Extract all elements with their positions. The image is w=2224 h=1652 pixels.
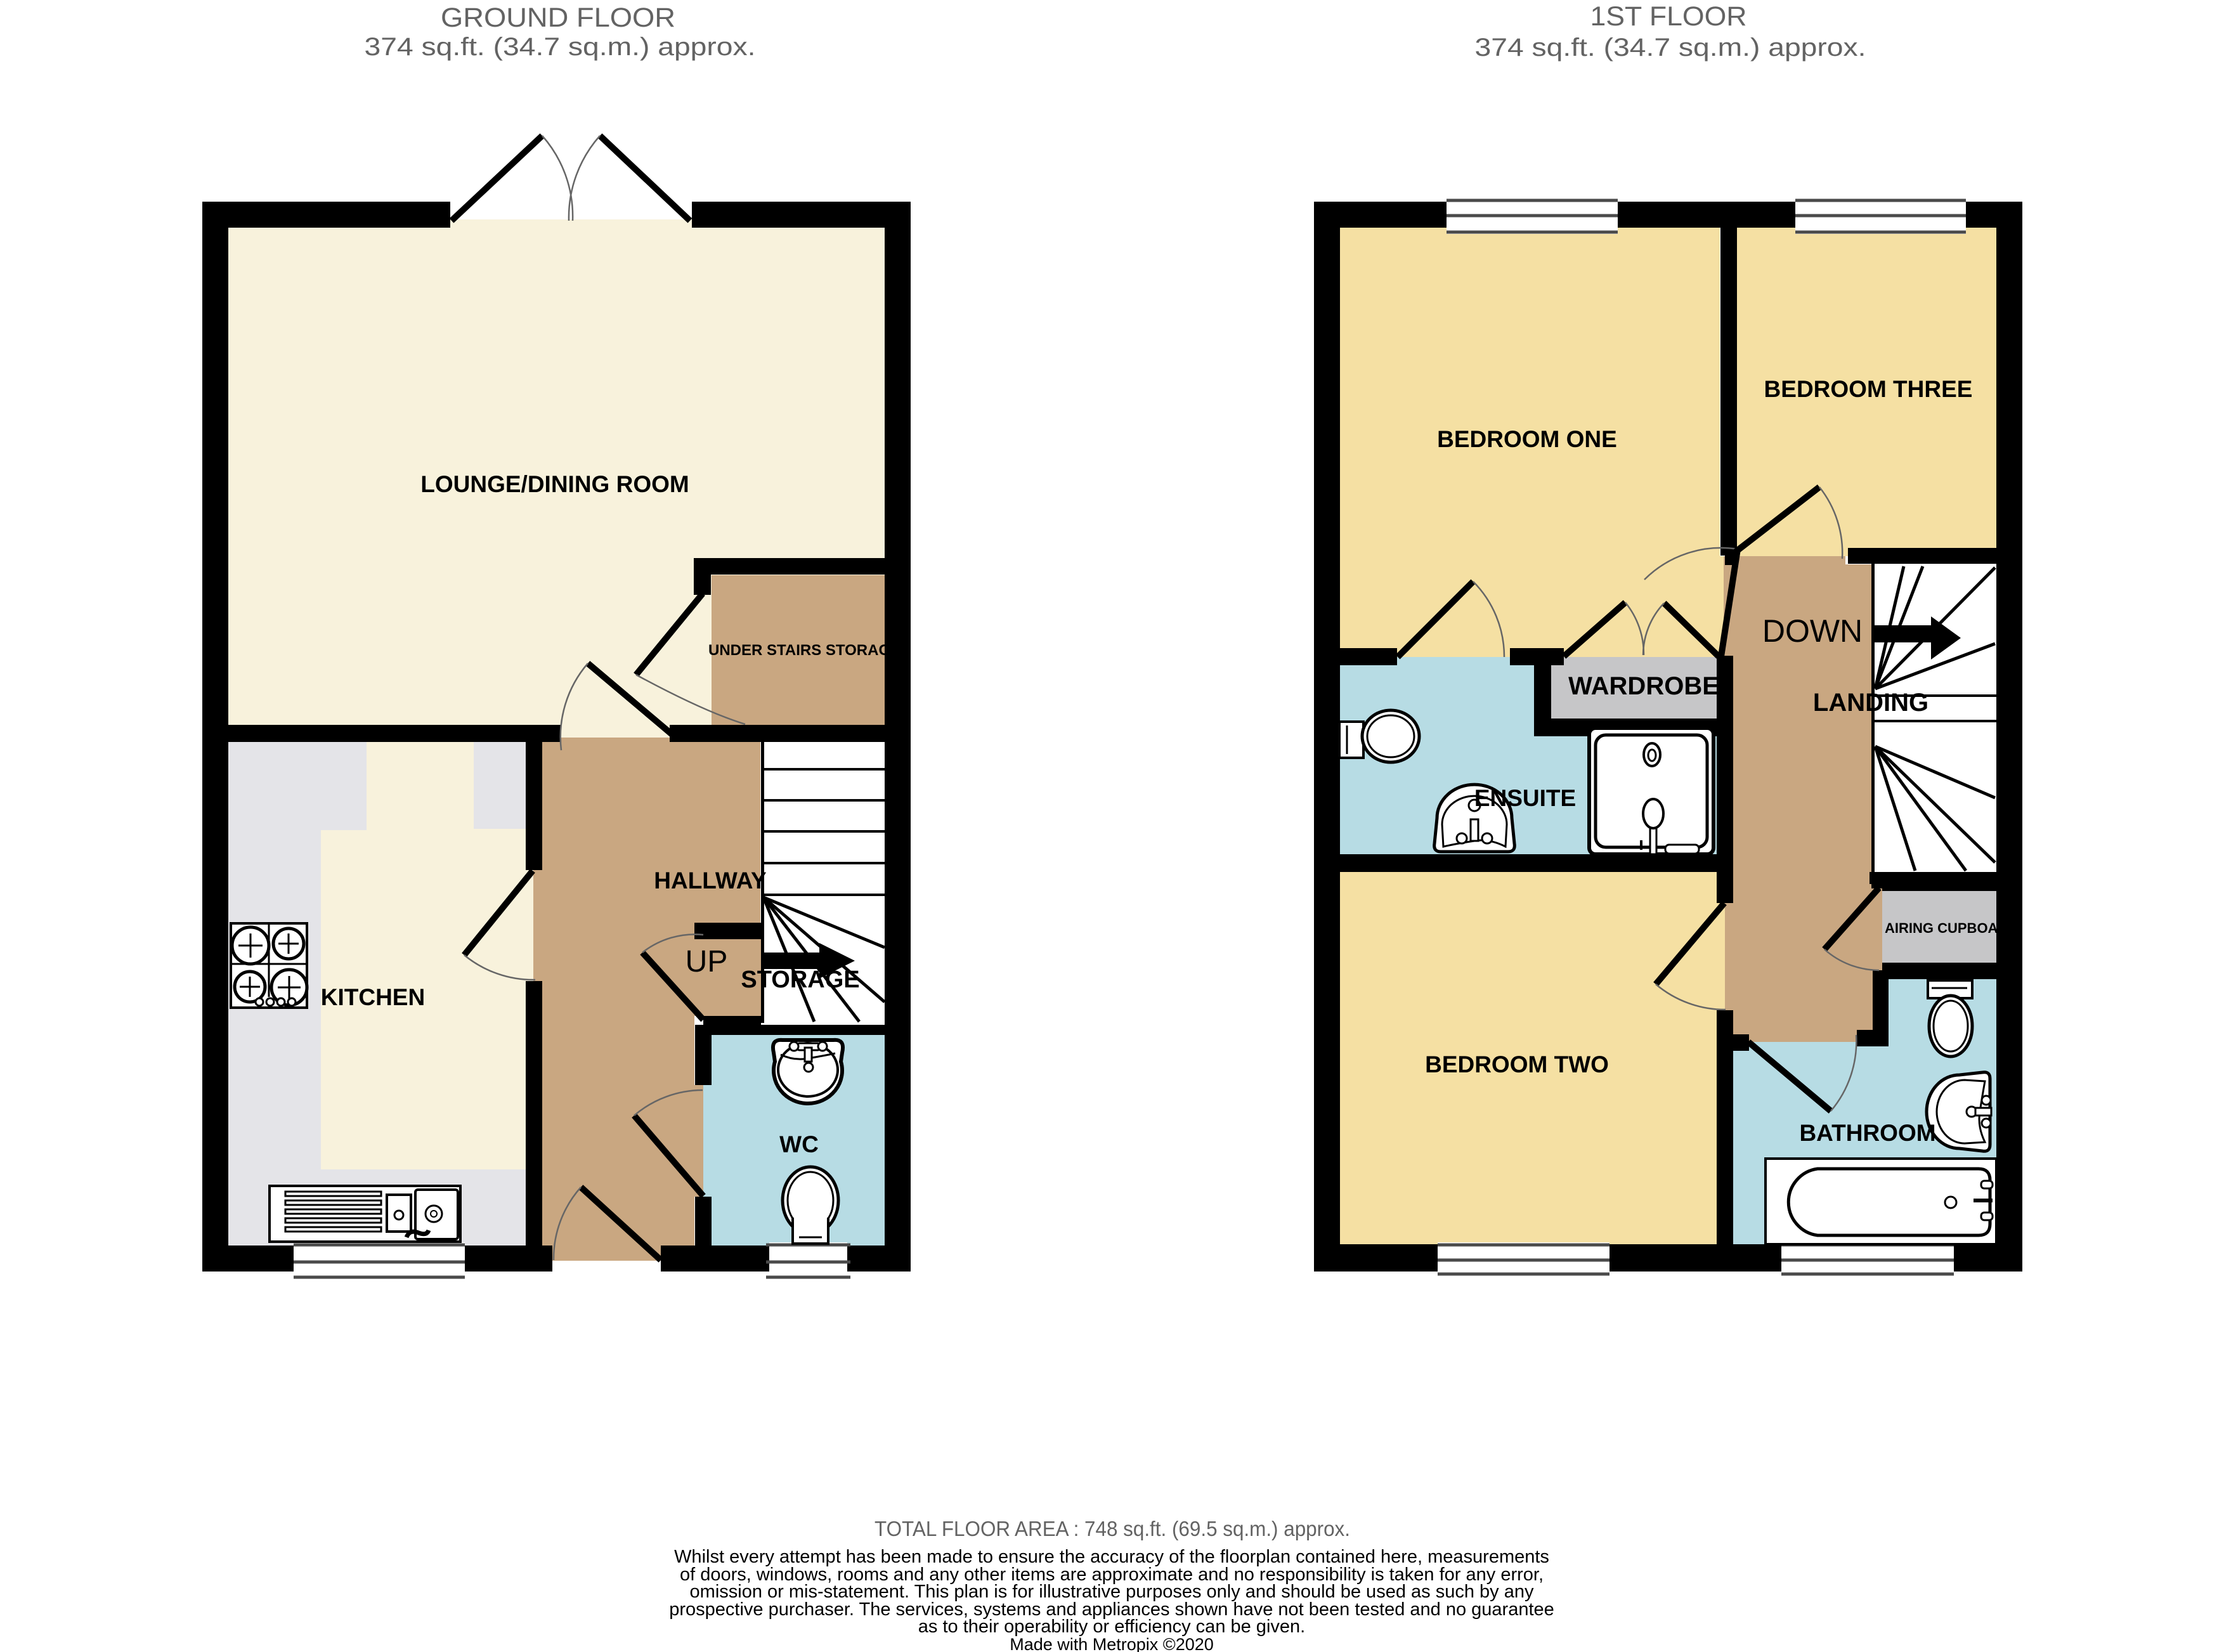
- svg-text:HALLWAY: HALLWAY: [654, 868, 767, 894]
- svg-text:UNDER STAIRS STORAGE: UNDER STAIRS STORAGE: [708, 642, 901, 659]
- svg-text:STORAGE: STORAGE: [741, 966, 859, 993]
- svg-text:LANDING: LANDING: [1813, 689, 1928, 717]
- svg-text:374 sq.ft. (34.7 sq.m.) approx: 374 sq.ft. (34.7 sq.m.) approx.: [365, 33, 756, 61]
- svg-text:BEDROOM ONE: BEDROOM ONE: [1437, 426, 1617, 452]
- svg-text:TOTAL FLOOR AREA : 748 sq.ft.: TOTAL FLOOR AREA : 748 sq.ft. (69.5 sq.m…: [875, 1517, 1350, 1540]
- svg-text:Made with Metropix ©2020: Made with Metropix ©2020: [1010, 1635, 1214, 1652]
- svg-text:as to their operability or eff: as to their operability or efficiency ca…: [918, 1616, 1305, 1637]
- svg-text:DOWN: DOWN: [1762, 613, 1863, 649]
- svg-text:AIRING CUPBOARD: AIRING CUPBOARD: [1885, 920, 2018, 936]
- svg-text:ENSUITE: ENSUITE: [1474, 785, 1576, 811]
- svg-text:WARDROBE: WARDROBE: [1568, 672, 1719, 700]
- svg-text:374 sq.ft. (34.7 sq.m.) approx: 374 sq.ft. (34.7 sq.m.) approx.: [1475, 34, 1866, 62]
- svg-text:GROUND FLOOR: GROUND FLOOR: [441, 3, 675, 33]
- svg-text:BEDROOM TWO: BEDROOM TWO: [1425, 1051, 1609, 1077]
- svg-text:BATHROOM: BATHROOM: [1799, 1120, 1935, 1146]
- svg-text:LOUNGE/DINING ROOM: LOUNGE/DINING ROOM: [420, 471, 689, 497]
- svg-text:UP: UP: [686, 945, 728, 979]
- svg-text:BEDROOM THREE: BEDROOM THREE: [1764, 376, 1973, 402]
- svg-text:KITCHEN: KITCHEN: [321, 984, 425, 1010]
- svg-text:WC: WC: [779, 1131, 819, 1157]
- svg-text:1ST FLOOR: 1ST FLOOR: [1590, 1, 1747, 32]
